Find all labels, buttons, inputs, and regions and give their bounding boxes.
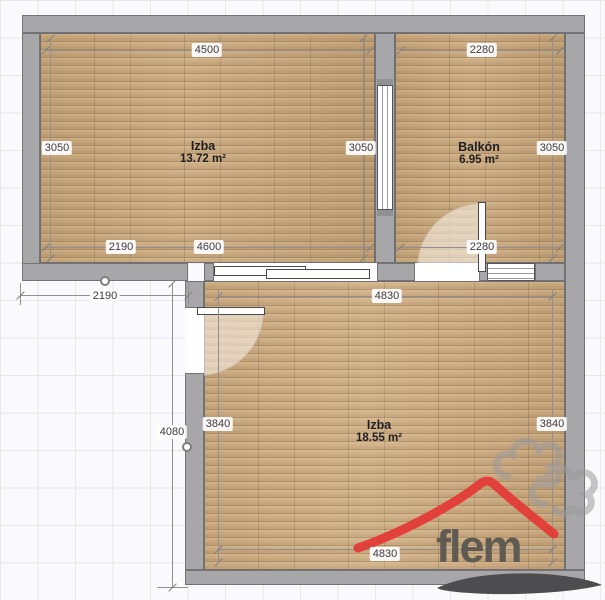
window-divider[interactable] <box>377 85 393 210</box>
floorplan-canvas[interactable]: 4500 3050 3050 2190 4600 2280 3050 2280 … <box>0 0 605 600</box>
wall-node-marker[interactable] <box>182 442 192 452</box>
wall-left[interactable] <box>22 33 40 281</box>
dim-label-balcony-top[interactable]: 2280 <box>467 43 497 57</box>
dim-label-room1-bottom-right[interactable]: 4600 <box>194 240 224 254</box>
room1-label: Izba 13.72 m² <box>180 139 226 165</box>
balcony-name: Balkón <box>458 140 500 154</box>
door-leaf-room2[interactable] <box>197 307 265 315</box>
opening-room2-door <box>185 308 204 373</box>
wall-room2-left-lower[interactable] <box>185 373 204 570</box>
dim-label-room1-right[interactable]: 3050 <box>346 141 376 155</box>
dim-label-room2-left[interactable]: 3840 <box>203 417 233 431</box>
wall-top[interactable] <box>22 15 585 33</box>
balcony-label: Balkón 6.95 m² <box>458 140 500 166</box>
logo-text: flem <box>436 524 521 569</box>
wall-band-b[interactable] <box>377 263 415 281</box>
dim-label-room2-top[interactable]: 4830 <box>372 289 402 303</box>
room1-area: 13.72 m² <box>180 153 226 165</box>
logo-swoosh-icon <box>437 573 602 594</box>
window-divider-cap-top <box>377 79 393 85</box>
dim-label-exterior-height[interactable]: 4080 <box>157 425 187 439</box>
dim-label-room1-left[interactable]: 3050 <box>42 141 72 155</box>
wall-band-d[interactable] <box>535 263 565 281</box>
dim-label-room2-bottom[interactable]: 4830 <box>370 547 400 561</box>
window-divider-cap-bottom <box>377 210 393 216</box>
dim-label-room2-right[interactable]: 3840 <box>537 417 567 431</box>
window-balcony[interactable] <box>487 263 535 281</box>
door-leaf-balcony[interactable] <box>478 202 486 272</box>
dim-label-exterior-width[interactable]: 2190 <box>90 289 120 303</box>
dim-label-balcony-bottom[interactable]: 2280 <box>467 240 497 254</box>
dim-label-balcony-right[interactable]: 3050 <box>537 141 567 155</box>
wall-band-a[interactable] <box>204 263 214 281</box>
sliding-door-panel-2[interactable] <box>266 269 370 279</box>
opening-balcony-door <box>415 263 479 281</box>
dim-label-room1-bottom-left[interactable]: 2190 <box>106 240 136 254</box>
room1-name: Izba <box>180 139 226 153</box>
wall-node-marker[interactable] <box>100 276 110 286</box>
balcony-area: 6.95 m² <box>458 154 500 166</box>
dim-label-room1-top[interactable]: 4500 <box>192 43 222 57</box>
